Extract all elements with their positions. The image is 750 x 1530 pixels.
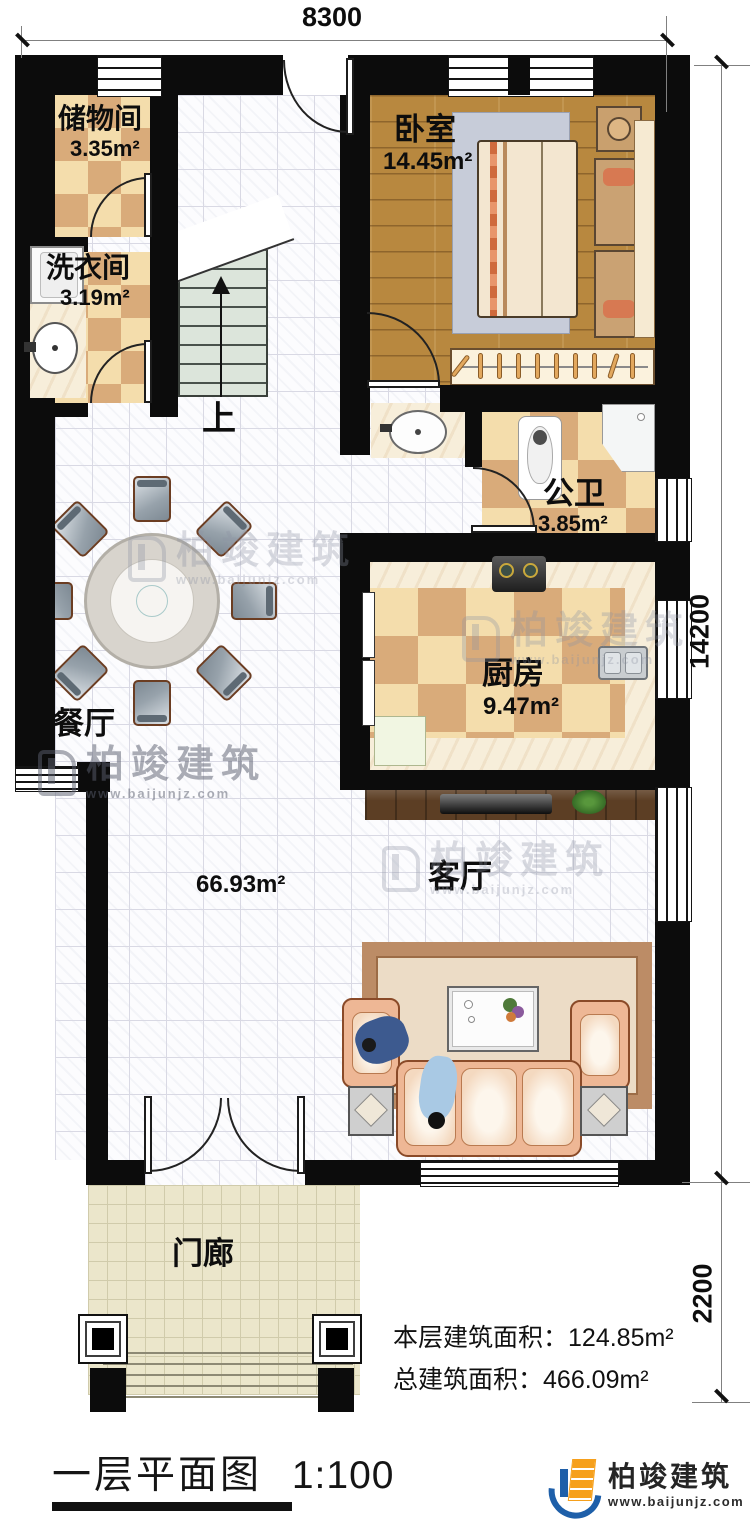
lazy-susan-icon xyxy=(136,585,168,617)
person-head-icon xyxy=(362,1038,376,1052)
floor-area-label: 本层建筑面积： xyxy=(393,1324,568,1352)
dining-chair xyxy=(133,476,171,522)
hanger-icon xyxy=(535,353,540,379)
watermark-text: 柏竣建筑 www.baijunjz.com xyxy=(430,842,610,896)
room-label-porch: 门廊 xyxy=(172,1238,234,1271)
door-leaf xyxy=(367,380,440,388)
armchair-cushion xyxy=(580,1014,620,1076)
plan-title: 一层平面图 1:100 xyxy=(52,1444,394,1500)
plan-title-text: 一层平面图 xyxy=(52,1454,262,1497)
wall-segment xyxy=(340,770,690,790)
brand-watermark-icon xyxy=(382,846,420,892)
brand-watermark-icon xyxy=(462,616,500,662)
brand-logo-icon xyxy=(550,1457,600,1513)
door-leaf xyxy=(471,525,537,533)
hanger-icon xyxy=(630,353,635,379)
watermark-text: 柏竣建筑 www.baijunjz.com xyxy=(510,612,690,666)
wall-segment xyxy=(55,403,88,417)
bedside-fan-inner-icon xyxy=(607,117,631,141)
wall-segment xyxy=(86,790,108,1160)
watermark-text: 柏竣建筑 www.baijunjz.com xyxy=(86,746,266,800)
cabinet-decor xyxy=(603,168,635,186)
wall-segment xyxy=(305,1160,420,1185)
watermark-name: 柏竣建筑 xyxy=(176,532,356,570)
wall-segment xyxy=(465,412,482,467)
door-leaf xyxy=(144,173,152,237)
stairs-direction-arrow xyxy=(220,292,222,397)
table-cup-icon xyxy=(464,1000,473,1009)
door-leaf xyxy=(297,1096,305,1174)
window-mullion xyxy=(508,55,530,95)
tv-screen xyxy=(440,794,552,814)
bed-blanket-stripe xyxy=(490,142,497,316)
logo-tower-blue-icon xyxy=(560,1469,568,1497)
brand-website: www.baijunjz.com xyxy=(608,1495,744,1508)
cabinet-decor xyxy=(603,300,635,318)
area-summary: 总建筑面积：466.09m² xyxy=(393,1360,649,1396)
porch-column xyxy=(78,1314,128,1364)
floor-plan-canvas: 储物间 3.35m² 洗衣间 3.19m² 卧室 14.45m² 公卫 3.85… xyxy=(0,0,750,1530)
watermark-url: www.baijunjz.com xyxy=(430,883,610,896)
watermark-url: www.baijunjz.com xyxy=(176,573,356,586)
room-area-kitchen: 9.47m² xyxy=(483,694,559,719)
dimension-line xyxy=(22,40,667,41)
door-leaf xyxy=(346,58,354,135)
room-area-bedroom: 14.45m² xyxy=(383,149,472,174)
room-area-laundry: 3.19m² xyxy=(60,286,130,309)
door-leaf xyxy=(144,340,152,403)
floor-area-value: 124.85m² xyxy=(568,1324,674,1352)
dining-chair xyxy=(231,582,277,620)
porch-post xyxy=(318,1368,354,1412)
window xyxy=(97,55,162,97)
logo-building-icon xyxy=(568,1459,596,1501)
window xyxy=(420,1160,619,1187)
brand-watermark-icon xyxy=(128,536,166,582)
watermark: 柏竣建筑 www.baijunjz.com xyxy=(38,746,266,800)
watermark-text: 柏竣建筑 www.baijunjz.com xyxy=(176,532,356,586)
stove-burner-icon xyxy=(499,563,514,578)
stove-burner-icon xyxy=(523,563,538,578)
watermark: 柏竣建筑 www.baijunjz.com xyxy=(382,842,610,896)
room-area-living: 66.93m² xyxy=(196,872,285,897)
kitchen-door-panel xyxy=(362,660,375,726)
wall-segment xyxy=(86,1160,145,1185)
hanger-icon xyxy=(554,353,559,379)
room-label-laundry: 洗衣间 xyxy=(46,253,130,282)
watermark-url: www.baijunjz.com xyxy=(86,787,266,800)
extension-line xyxy=(666,16,667,112)
room-label-bedroom: 卧室 xyxy=(394,114,456,147)
sofa-cushion xyxy=(461,1068,517,1146)
dimension-width: 8300 xyxy=(282,2,382,33)
hanger-icon xyxy=(573,353,578,379)
area-summary: 本层建筑面积：124.85m² xyxy=(393,1318,674,1354)
dimension-line xyxy=(721,1183,722,1403)
wall-segment xyxy=(150,95,178,417)
bed-fold-line xyxy=(541,142,543,316)
fridge xyxy=(374,716,426,766)
dimension-height-porch: 2200 xyxy=(688,1244,719,1344)
brand-name: 柏竣建筑 xyxy=(608,1463,744,1491)
watermark-url: www.baijunjz.com xyxy=(510,653,690,666)
hanger-icon xyxy=(516,353,521,379)
dimension-line xyxy=(721,66,722,1183)
wall-segment xyxy=(160,55,283,95)
watermark: 柏竣建筑 www.baijunjz.com xyxy=(462,612,690,666)
kitchen-door-panel xyxy=(362,592,375,658)
window xyxy=(655,787,692,922)
room-label-dining: 餐厅 xyxy=(53,708,115,741)
wardrobe-rod xyxy=(458,366,648,368)
hanger-icon xyxy=(478,353,483,379)
wall-segment xyxy=(15,55,55,766)
room-area-bathroom: 3.85m² xyxy=(538,512,608,535)
wall-segment xyxy=(340,385,367,412)
shower-drain-icon xyxy=(637,413,645,421)
brand-watermark-icon xyxy=(38,750,76,796)
washbasin-drain-icon xyxy=(415,429,421,435)
sofa-cushion xyxy=(522,1068,574,1146)
person-head-icon xyxy=(428,1112,445,1129)
hanger-icon xyxy=(592,353,597,379)
watermark-name: 柏竣建筑 xyxy=(510,612,690,650)
wall-segment xyxy=(617,1160,690,1185)
plant-icon xyxy=(572,790,606,814)
table-flowers-icon xyxy=(506,1012,516,1022)
bed-runner xyxy=(634,120,655,338)
dining-chair xyxy=(133,680,171,726)
laundry-faucet-icon xyxy=(24,342,36,352)
laundry-sink-drain-icon xyxy=(52,345,58,351)
brand-logo-text: 柏竣建筑 www.baijunjz.com xyxy=(608,1463,744,1508)
room-label-bathroom: 公卫 xyxy=(543,478,605,511)
room-area-storage: 3.35m² xyxy=(70,137,140,160)
stairs-up-label: 上 xyxy=(202,402,236,438)
coffee-table-top xyxy=(452,991,534,1047)
title-underline xyxy=(52,1502,292,1511)
wall-segment xyxy=(348,55,448,95)
squat-toilet-drain-icon xyxy=(533,430,547,445)
washbasin-faucet-icon xyxy=(380,424,392,432)
stairs-arrowhead-icon xyxy=(212,276,230,294)
hanger-icon xyxy=(497,353,502,379)
extension-line xyxy=(682,1182,750,1183)
watermark-name: 柏竣建筑 xyxy=(86,746,266,784)
brand-logo: 柏竣建筑 www.baijunjz.com xyxy=(550,1454,746,1516)
window xyxy=(655,478,692,542)
room-label-storage: 储物间 xyxy=(58,104,142,133)
total-area-label: 总建筑面积： xyxy=(393,1366,543,1394)
plan-title-scale: 1:100 xyxy=(292,1454,395,1497)
table-cup-icon xyxy=(468,1016,475,1023)
extension-line xyxy=(692,1402,750,1403)
total-area-value: 466.09m² xyxy=(543,1366,649,1394)
bed-blanket-stripe xyxy=(503,142,507,316)
porch-column xyxy=(312,1314,362,1364)
watermark: 柏竣建筑 www.baijunjz.com xyxy=(128,532,356,586)
watermark-name: 柏竣建筑 xyxy=(430,842,610,880)
porch-post xyxy=(90,1368,126,1412)
door-leaf xyxy=(144,1096,152,1174)
